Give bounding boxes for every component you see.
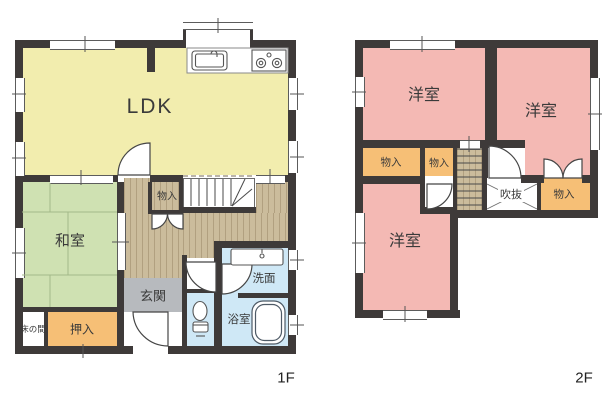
- wall: [115, 40, 186, 48]
- room-label-yoshitsu-1: 洋室: [408, 81, 440, 105]
- label-tokonoma: 床の間: [20, 323, 46, 335]
- window: [15, 78, 25, 112]
- window: [288, 141, 298, 173]
- closet-label-oshiire: 押入: [70, 321, 94, 338]
- wall: [182, 255, 187, 346]
- wall: [453, 210, 598, 218]
- wall: [420, 148, 425, 210]
- wall: [355, 40, 363, 77]
- window: [355, 77, 365, 107]
- wall: [482, 178, 487, 210]
- window: [355, 213, 365, 273]
- wall: [288, 173, 296, 250]
- wall: [590, 150, 598, 218]
- wall: [285, 175, 288, 182]
- window: [50, 40, 115, 50]
- hallway-wood: [256, 180, 288, 213]
- window: [183, 22, 253, 30]
- wall: [288, 270, 296, 315]
- room-toilet: [187, 293, 214, 346]
- wall: [168, 346, 296, 354]
- wall: [15, 346, 133, 354]
- wall: [15, 278, 23, 354]
- bay-opening: [186, 40, 250, 48]
- floor-2-label: 2F: [575, 370, 593, 387]
- wall: [15, 40, 23, 78]
- window: [288, 315, 298, 335]
- wall: [288, 40, 296, 78]
- room-label-ldk: LDK: [127, 95, 174, 119]
- window: [460, 140, 480, 150]
- wall: [148, 210, 183, 214]
- wall: [147, 48, 155, 72]
- wall: [355, 310, 383, 318]
- room-label-senmen: 洗面: [253, 270, 276, 286]
- opening: [256, 175, 285, 184]
- wall: [482, 142, 488, 178]
- closet-label-monoire-mid: 物入: [429, 155, 449, 170]
- wall: [590, 40, 598, 78]
- closet-label-monoire: 物入: [157, 188, 177, 203]
- wall: [420, 207, 457, 214]
- window: [15, 142, 25, 176]
- wall: [15, 112, 23, 142]
- staircase-2f: [457, 142, 482, 210]
- room-label-washitsu: 和室: [55, 230, 85, 251]
- entrance-opening: [133, 346, 168, 354]
- wall: [183, 207, 256, 213]
- wall: [355, 176, 420, 184]
- genkan-doma: [124, 312, 183, 346]
- toilet-vestibule: [183, 258, 214, 293]
- window: [390, 40, 455, 50]
- window: [15, 228, 25, 278]
- wall: [150, 175, 183, 182]
- room3-entry-nook: [425, 184, 453, 207]
- wall: [455, 40, 598, 48]
- wall: [521, 175, 544, 183]
- wall: [22, 307, 117, 312]
- room-label-yoshitsu-2: 洋室: [525, 97, 557, 121]
- wall: [485, 48, 497, 142]
- wall: [214, 241, 288, 248]
- window: [288, 250, 298, 270]
- room-label-genkan: 玄関: [140, 286, 166, 305]
- wall: [183, 289, 214, 293]
- wall: [582, 175, 590, 183]
- closet-label-monoire-left: 物入: [381, 155, 402, 170]
- wall: [355, 107, 363, 213]
- wall: [113, 175, 118, 182]
- wall: [117, 182, 124, 213]
- label-fukinuke: 吹抜: [498, 186, 524, 202]
- staircase-1f: [183, 178, 255, 209]
- room-label-yoshitsu-3: 洋室: [389, 227, 421, 251]
- sliding-door-fusuma: [50, 175, 113, 184]
- wall: [427, 310, 460, 318]
- wall: [15, 176, 23, 228]
- window: [590, 78, 600, 150]
- stair-landing-2f: [488, 148, 525, 178]
- wall: [357, 140, 457, 148]
- window: [383, 310, 427, 320]
- wall: [214, 241, 222, 346]
- closet-label-monoire-right: 物入: [554, 187, 575, 202]
- sliding-door: [117, 213, 126, 270]
- hallway-wood: [183, 213, 288, 243]
- hallway-wood: [183, 243, 214, 258]
- room-label-yokushitsu: 浴室: [228, 311, 251, 327]
- wall: [288, 110, 296, 141]
- wall: [453, 142, 457, 210]
- wall: [117, 270, 124, 354]
- wall: [450, 210, 458, 318]
- floor-1-label: 1F: [277, 370, 295, 387]
- wall: [238, 293, 288, 298]
- window: [288, 78, 298, 110]
- floor-plan-page: { "colors": { "wall": "#3e3a39", "ldk": …: [0, 0, 610, 405]
- wall: [22, 175, 50, 182]
